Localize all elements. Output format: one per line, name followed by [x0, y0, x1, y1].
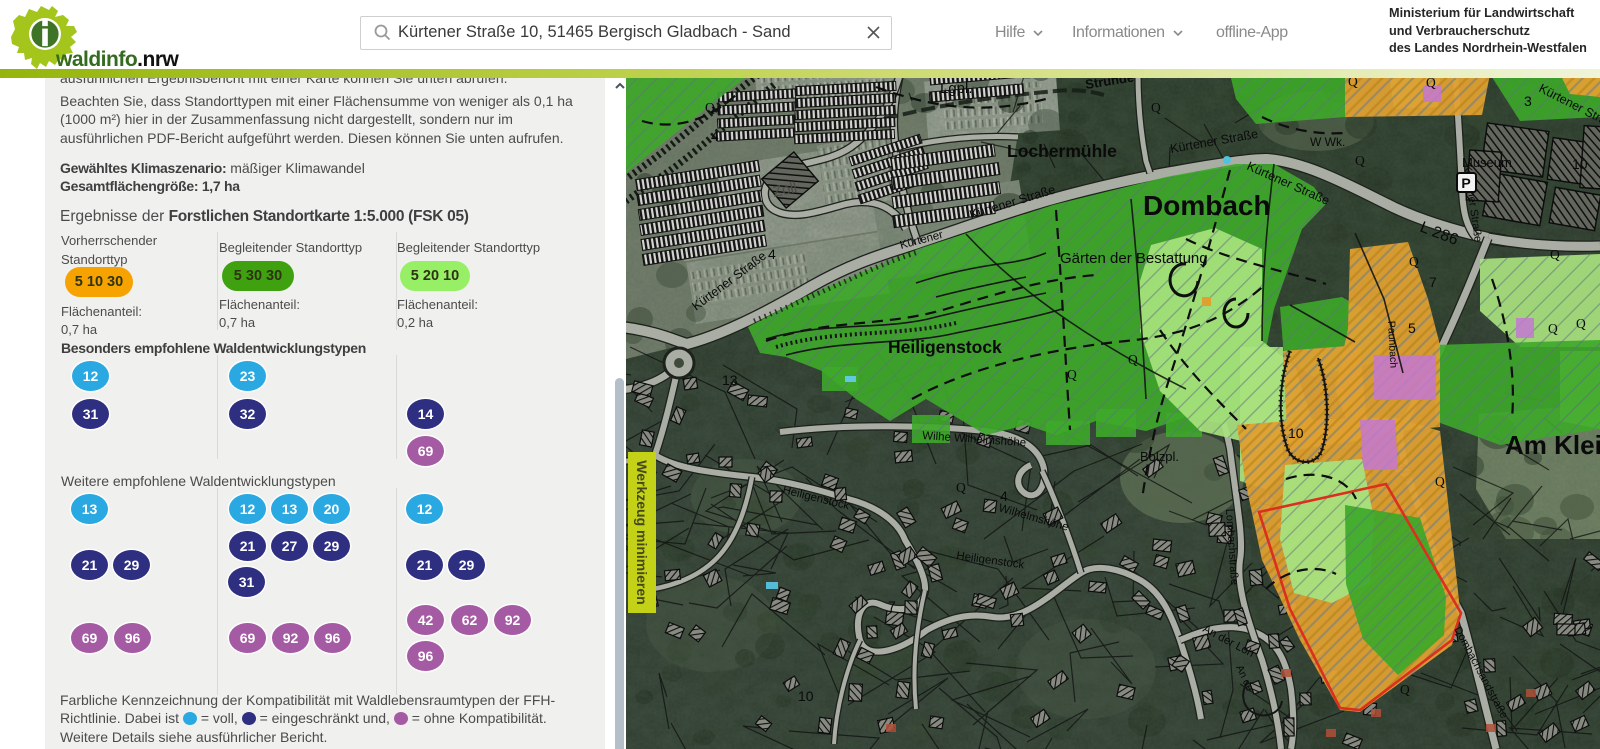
svg-text:3: 3	[1524, 93, 1532, 109]
svg-text:Q: Q	[1151, 100, 1161, 115]
svg-text:Lgpl.: Lgpl.	[940, 80, 973, 97]
svg-text:Q: Q	[1355, 153, 1365, 168]
svg-text:4: 4	[768, 246, 776, 262]
svg-text:Heiligenstock: Heiligenstock	[888, 337, 1002, 357]
svg-text:10: 10	[1572, 156, 1588, 172]
svg-text:Q: Q	[705, 100, 715, 115]
svg-text:Q: Q	[1435, 474, 1445, 489]
svg-text:Q: Q	[1067, 367, 1077, 382]
svg-text:Museum: Museum	[1462, 155, 1512, 170]
svg-text:Paunbach: Paunbach	[1385, 321, 1399, 369]
svg-text:Dombach: Dombach	[1143, 190, 1271, 221]
svg-text:Gärten der Bestattung: Gärten der Bestattung	[1060, 250, 1208, 267]
svg-text:4: 4	[1000, 488, 1008, 504]
svg-text:5: 5	[1408, 320, 1416, 336]
svg-text:Q: Q	[1128, 352, 1138, 367]
svg-text:Q: Q	[1548, 321, 1558, 336]
svg-text:13: 13	[722, 372, 738, 388]
svg-text:Q: Q	[1576, 316, 1586, 331]
svg-text:Am Kleife: Am Kleife	[1505, 430, 1600, 460]
svg-text:Q: Q	[1400, 682, 1410, 697]
svg-text:10: 10	[1288, 425, 1304, 441]
svg-text:7: 7	[1429, 274, 1437, 290]
svg-text:Bolzpl.: Bolzpl.	[1140, 449, 1179, 464]
svg-text:P: P	[1461, 175, 1470, 191]
svg-text:10: 10	[798, 688, 814, 704]
svg-text:Q: Q	[1550, 247, 1560, 262]
svg-text:Lochermühle: Lochermühle	[1007, 141, 1117, 161]
svg-text:W Wk.: W Wk.	[1310, 135, 1345, 149]
svg-text:Q: Q	[956, 480, 966, 495]
svg-text:Q: Q	[1409, 254, 1419, 269]
svg-text:4: 4	[711, 128, 719, 144]
svg-text:7: 7	[888, 598, 896, 614]
